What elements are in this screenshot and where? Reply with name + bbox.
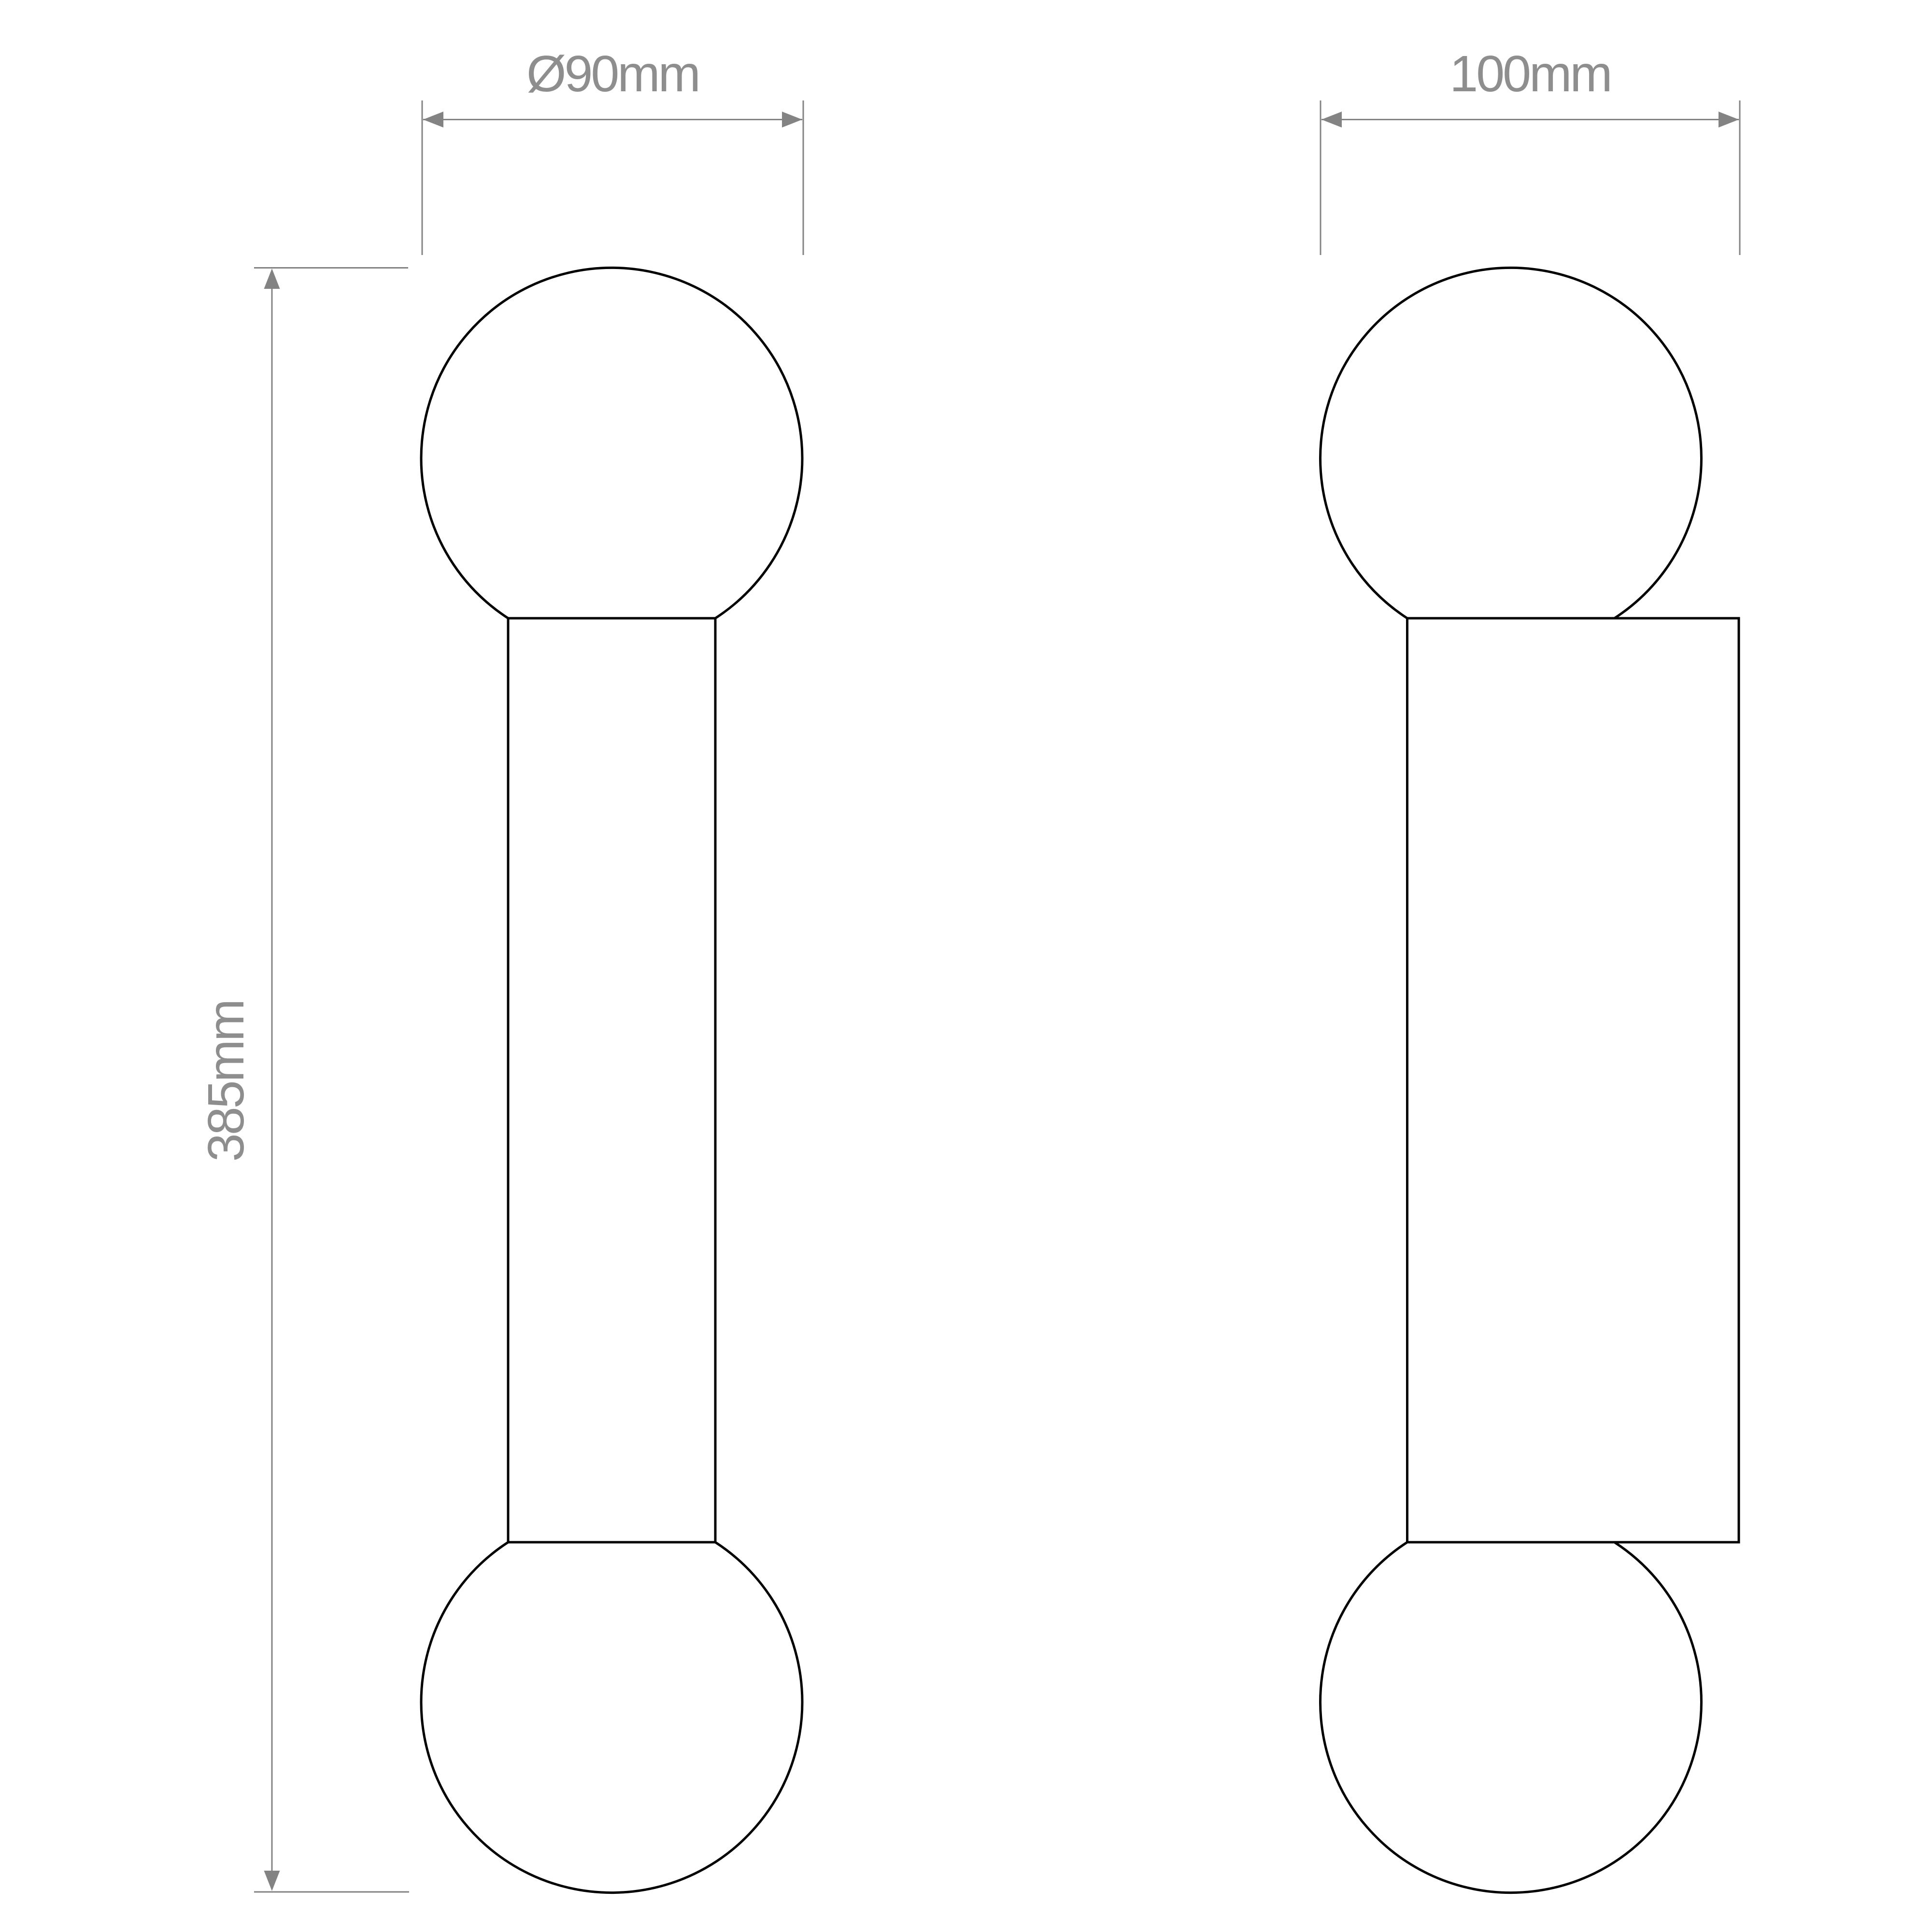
svg-text:Ø90mm: Ø90mm bbox=[526, 45, 699, 102]
svg-text:385mm: 385mm bbox=[198, 1001, 255, 1162]
svg-text:100mm: 100mm bbox=[1449, 45, 1610, 102]
